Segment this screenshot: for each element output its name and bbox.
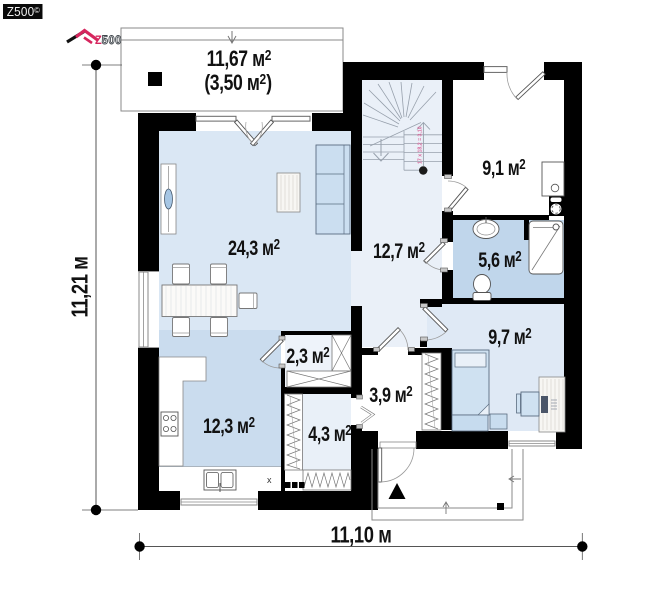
svg-text:x: x — [267, 475, 272, 485]
svg-text:17 x 18,2 = 3,10: 17 x 18,2 = 3,10 — [418, 126, 424, 164]
